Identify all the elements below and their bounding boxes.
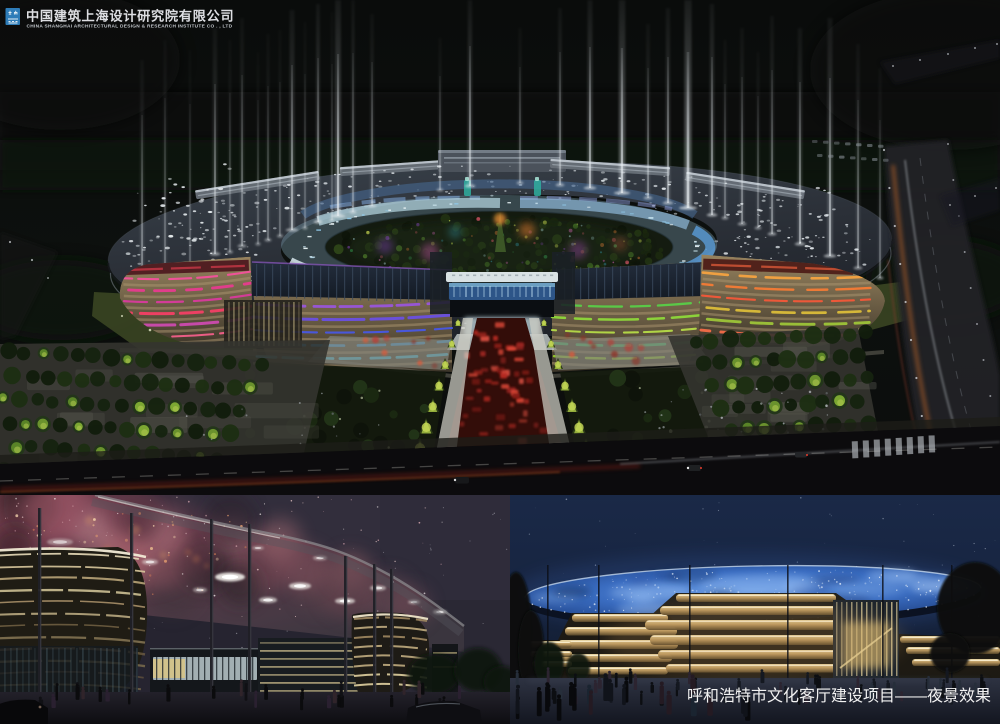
svg-text:呼和浩特市文化客厅建设项目——夜景效果: 呼和浩特市文化客厅建设项目——夜景效果 xyxy=(687,687,991,705)
svg-text:中国建筑上海设计研究院有限公司: 中国建筑上海设计研究院有限公司 xyxy=(26,8,234,24)
svg-text:CHINA SHANGHAI ARCHITECTURAL D: CHINA SHANGHAI ARCHITECTURAL DESIGN & RE… xyxy=(27,24,233,30)
